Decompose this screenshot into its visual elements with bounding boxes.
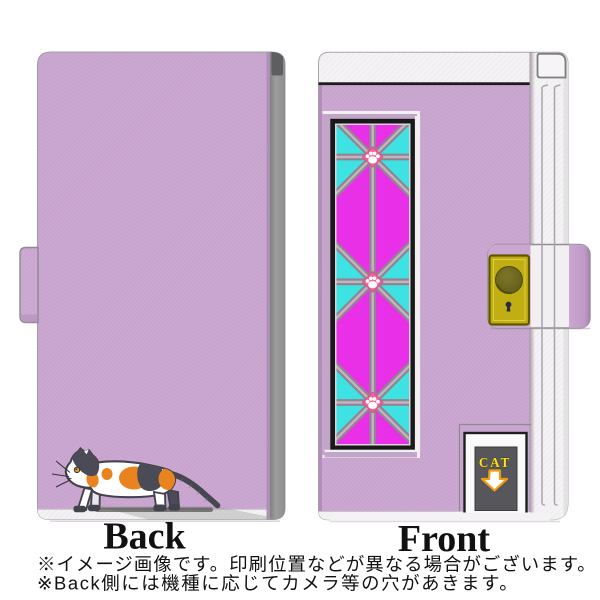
svg-text:Back: Back [103,516,186,558]
svg-text:※イメージ画像です。印刷位置などが異なる場合がございます。: ※イメージ画像です。印刷位置などが異なる場合がございます。 [37,554,597,575]
svg-text:※Back側には機種に応じてカメラ等の穴があきます。: ※Back側には機種に応じてカメラ等の穴があきます。 [37,573,519,594]
svg-text:CAT: CAT [479,455,511,470]
